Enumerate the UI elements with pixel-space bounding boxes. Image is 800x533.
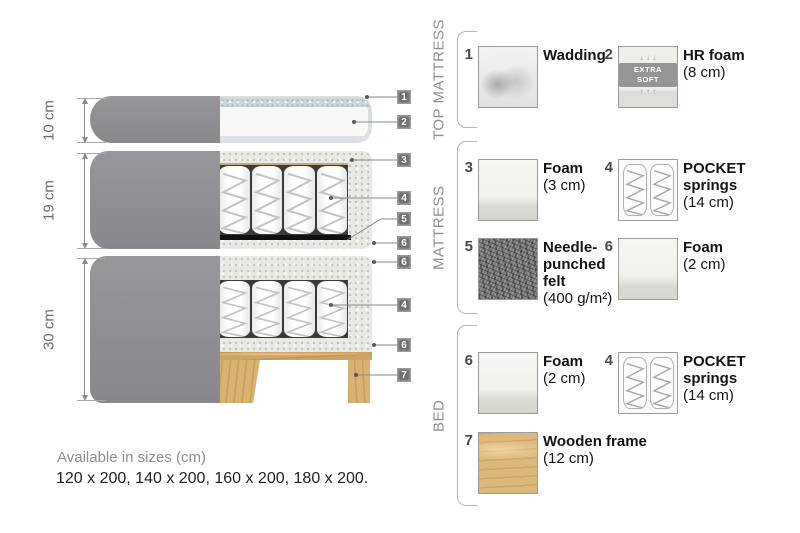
dimension-line [84,260,85,399]
section-label-bed: BED [430,325,448,506]
legend-item-wooden-frame: 7 Wooden frame (12 cm) [455,432,693,494]
dimension-line [84,100,85,141]
pocket-springs-swatch [618,159,678,221]
arrows-up: ↑ ↑ ↑ [619,87,677,97]
wadding-edge-texture [210,98,370,107]
dimension-arrow-30cm [80,258,89,401]
legend-label: HR foam [683,47,793,64]
arrowhead-down-icon [82,395,88,401]
available-sizes-values: 120 x 200, 140 x 200, 160 x 200, 180 x 2… [56,470,368,488]
callout-badge-6c: 6 [397,338,411,352]
callout-badge-7: 7 [397,368,411,382]
section-label-top-mattress: TOP MATTRESS [430,31,448,128]
arrows-down: ↓ ↓ ↓ [619,53,677,63]
legend-text: POCKET springs (14 cm) [683,159,775,221]
legend-number: 5 [455,238,473,307]
top-mattress-bottom-edge [211,136,369,141]
callout-badge-5: 5 [397,212,411,226]
mattress-foam-border [215,151,372,249]
pocket-spring-illustration [650,357,674,409]
diagram-mattress [90,151,372,249]
callout-badge-4b: 4 [397,298,411,312]
section-label-mattress: MATTRESS [430,141,448,314]
needle-punched-felt-layer [218,235,351,240]
callout-badge-6b: 6 [397,255,411,269]
legend-label: Wooden frame [543,433,693,450]
dimension-arrow-10cm [80,98,89,143]
pocket-spring-illustration [623,164,647,216]
bed-foam-border [215,256,372,352]
hr-foam-swatch: ↓ ↓ ↓ EXTRA SOFT ↑ ↑ ↑ [618,46,678,108]
diagram-bed-base [90,256,372,403]
infographic-canvas: 10 cm 19 cm 30 cm 1 2 3 4 5 6 6 4 6 7 [0,0,800,533]
foam-swatch [618,238,678,300]
legend-number: 7 [455,432,473,494]
available-sizes-title: Available in sizes (cm) [57,449,206,466]
pocket-spring-illustration [219,166,250,234]
extra-soft-marking: ↓ ↓ ↓ EXTRA SOFT ↑ ↑ ↑ [619,53,677,97]
pocket-spring-illustration [252,281,283,337]
mattress-springs-row [218,165,348,235]
diagram-top-mattress [90,96,372,143]
legend-size: (8 cm) [683,64,793,81]
top-mattress-cover [90,96,220,143]
legend-item-foam-2cm: 6 Foam (2 cm) [595,238,793,300]
pocket-spring-illustration [623,357,647,409]
bed-cover [90,256,220,403]
callout-badge-3: 3 [397,153,411,167]
legend-size: (12 cm) [543,450,693,467]
legend-text: POCKET springs (14 cm) [683,352,775,414]
extra-soft-badge: EXTRA SOFT [619,63,677,87]
pocket-spring-illustration [219,281,250,337]
legend-number: 6 [455,352,473,414]
wooden-rail [218,352,372,360]
legend-label: POCKET springs [683,353,775,387]
arrowhead-down-icon [82,137,88,143]
spring-pillows [619,353,677,413]
dimension-label-10cm: 10 cm [40,98,58,143]
legend-size: (2 cm) [683,256,793,273]
callout-badge-6: 6 [397,236,411,250]
legend-number: 2 [595,46,613,108]
spring-pillows [619,160,677,220]
legend-item-hr-foam: 2 ↓ ↓ ↓ EXTRA SOFT ↑ ↑ ↑ HR foam (8 cm) [595,46,793,108]
callout-badge-4: 4 [397,191,411,205]
dimension-label-19cm: 19 cm [40,153,58,249]
callout-badge-1: 1 [397,90,411,104]
dimension-arrow-19cm [80,153,89,249]
wooden-leg-right [348,360,370,403]
pocket-spring-illustration [317,166,348,234]
legend-label: Foam [683,239,793,256]
legend-item-pocket-springs-bed: 4 POCKET springs (14 cm) [595,352,775,414]
pocket-spring-illustration [284,166,315,234]
legend-number: 6 [595,238,613,300]
pocket-spring-illustration [284,281,315,337]
callout-badge-2: 2 [397,115,411,129]
foam-swatch [478,159,538,221]
bed-springs-row [218,280,348,338]
legend-number: 1 [455,46,473,108]
legend-text: Wooden frame (12 cm) [543,432,693,494]
legend-number: 4 [595,159,613,221]
legend-text: HR foam (8 cm) [683,46,793,108]
legend-size: (14 cm) [683,194,775,211]
foam-swatch [478,352,538,414]
wadding-swatch [478,46,538,108]
dimension-line [84,155,85,247]
wood-swatch [478,432,538,494]
legend-label: POCKET springs [683,160,775,194]
legend-item-pocket-springs: 4 POCKET springs (14 cm) [595,159,775,221]
arrowhead-down-icon [82,243,88,249]
dimension-label-30cm: 30 cm [40,258,58,401]
pocket-spring-illustration [252,166,283,234]
top-mattress-cross-section [208,96,372,143]
felt-swatch [478,238,538,300]
pocket-spring-illustration [317,281,348,337]
pocket-spring-illustration [650,164,674,216]
legend-size: (14 cm) [683,387,775,404]
legend-number: 4 [595,352,613,414]
legend-number: 3 [455,159,473,221]
pocket-springs-swatch [618,352,678,414]
mattress-cover [90,151,220,249]
legend-text: Foam (2 cm) [683,238,793,300]
